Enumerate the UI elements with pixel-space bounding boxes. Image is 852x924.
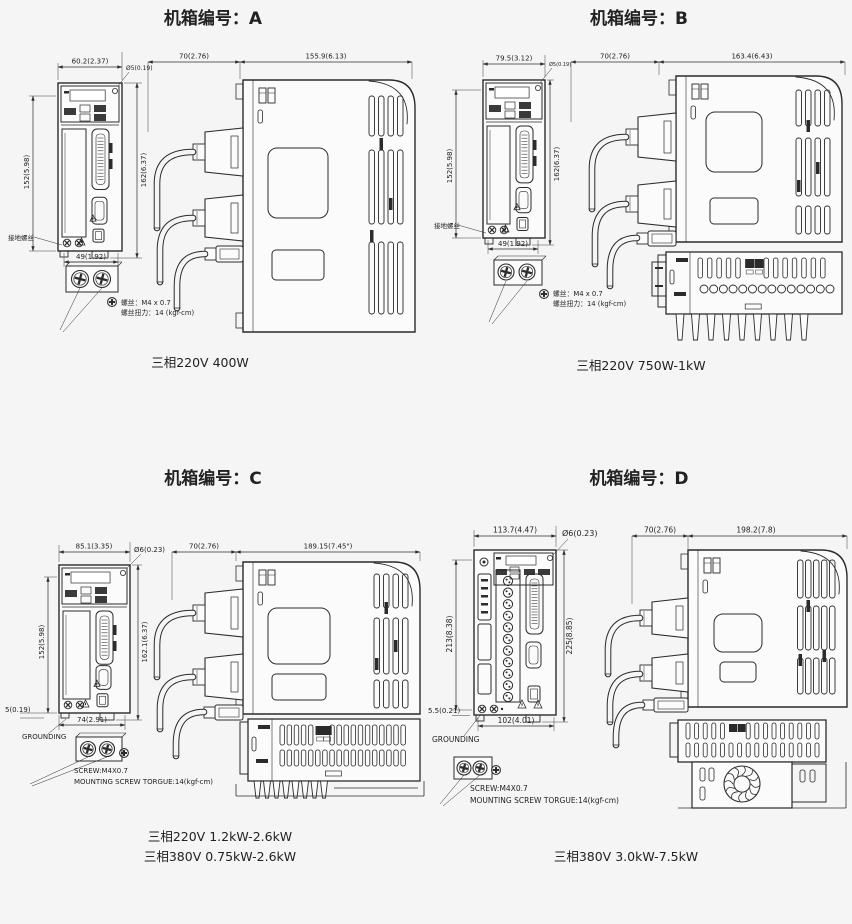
front-view (59, 565, 130, 713)
side-view (669, 76, 842, 242)
dim-label: 152(5.98) (446, 149, 454, 184)
cables (154, 128, 243, 308)
dim-label: 5(0.19) (5, 706, 31, 714)
dim-label: 79.5(3.12) (496, 55, 533, 63)
power-rating: 三相380V 3.0kW-7.5kW (554, 849, 698, 864)
panel-chassis-c: 机箱编号：C85.1(3.35)Ø6(0.23)70(2.76)189.15(7… (0, 462, 426, 924)
dim-label: 198.2(7.8) (736, 526, 775, 535)
screw-note: 螺丝：M4 x 0.7 (121, 298, 171, 307)
bottom-view (670, 720, 846, 808)
screw-note: SCREW:M4X0.7 (470, 784, 528, 793)
dim-label: Ø6(0.23) (562, 528, 597, 538)
dim-label: 213(8.38) (445, 615, 454, 652)
dim-label: 70(2.76) (600, 53, 630, 61)
panel-title: 机箱编号：A (164, 8, 263, 29)
dim-label: 163.4(6.43) (731, 53, 772, 61)
dim-label: 102(4.01) (498, 716, 535, 725)
dim-label: 70(2.76) (179, 53, 209, 61)
dim-label: 113.7(4.47) (493, 526, 537, 535)
power-rating: 三相220V 1.2kW-2.6kW (148, 829, 292, 844)
dim-label: 225(8.85) (565, 617, 574, 654)
screw-note: SCREW:M4X0.7 (74, 767, 128, 775)
notes: GROUNDINGSCREW:M4X0.7MOUNTING SCREW TORG… (22, 719, 213, 786)
front-view (483, 80, 545, 238)
dim-label: Ø6(0.23) (134, 546, 165, 554)
screw-note: MOUNTING SCREW TORGUE:14(kgf-cm) (74, 778, 213, 786)
dim-label: 162(6.37) (553, 147, 561, 182)
panel-title: 机箱编号：D (589, 468, 688, 489)
power-rating: 三相220V 750W-1kW (576, 358, 705, 373)
panel-title: 机箱编号：C (164, 468, 261, 489)
power-rating: 三相220V 400W (151, 355, 249, 370)
dim-label: 70(2.76) (189, 543, 219, 551)
front-view (58, 83, 122, 251)
dim-label: 74(2.91) (77, 716, 107, 724)
dim-label: 85.1(3.35) (76, 543, 113, 551)
bottom-view (658, 252, 842, 314)
panel-chassis-a: 机箱编号：A60.2(2.37)Ø5(0.19)70(2.76)155.9(6.… (0, 0, 426, 462)
grounding-label: GROUNDING (22, 733, 66, 741)
grounding-label: 接地螺丝 (8, 233, 35, 242)
notes: GROUNDINGSCREW:M4X0.7MOUNTING SCREW TORG… (432, 714, 619, 806)
dim-label: 189.15(7.45") (304, 543, 353, 551)
dim-label: 70(2.76) (644, 526, 676, 535)
dim-label: 152(5.98) (23, 155, 31, 190)
panel-chassis-d: 机箱编号：D113.7(4.47)Ø6(0.23)70(2.76)198.2(7… (426, 462, 852, 924)
dim-label: Ø5(0.19) (549, 61, 571, 68)
dim-label: 60.2(2.37) (72, 58, 109, 66)
dim-label: 49(1.92) (498, 240, 528, 248)
dim-label: Ø5(0.19) (126, 65, 153, 72)
bottom-view (240, 719, 420, 781)
cables (589, 113, 676, 286)
side-view (236, 562, 420, 714)
screw-note: 螺丝扭力：14 (kgf-cm) (553, 299, 627, 308)
chassis-dimension-sheet: 机箱编号：A60.2(2.37)Ø5(0.19)70(2.76)155.9(6.… (0, 0, 852, 924)
dim-label: 49(1.92) (76, 253, 106, 261)
side-view (236, 80, 415, 332)
dim-label: 152(5.98) (38, 625, 46, 660)
dim-label: 155.9(6.13) (305, 53, 346, 61)
grounding-label: GROUNDING (432, 735, 480, 744)
grounding-label: 接地螺丝 (434, 221, 461, 230)
panel-chassis-b: 机箱编号：B79.5(3.12)Ø5(0.19)70(2.76)163.4(6.… (426, 0, 852, 462)
side-view (681, 550, 847, 707)
dim-label: 162(6.37) (140, 153, 148, 188)
front-view (474, 550, 556, 722)
screw-note: MOUNTING SCREW TORGUE:14(kgf-cm) (470, 796, 619, 805)
power-rating: 三相380V 0.75kW-2.6kW (144, 849, 296, 864)
panel-title: 机箱编号：B (590, 8, 688, 29)
screw-note: 螺丝扭力：14 (kgf-cm) (121, 308, 195, 317)
screw-note: 螺丝：M4 x 0.7 (553, 289, 603, 298)
cables (154, 589, 243, 756)
panel-grid: 机箱编号：A60.2(2.37)Ø5(0.19)70(2.76)155.9(6.… (0, 0, 852, 924)
dim-label: 162.1(6.37) (141, 621, 149, 662)
dim-label: 5.5(0.21) (428, 707, 460, 715)
